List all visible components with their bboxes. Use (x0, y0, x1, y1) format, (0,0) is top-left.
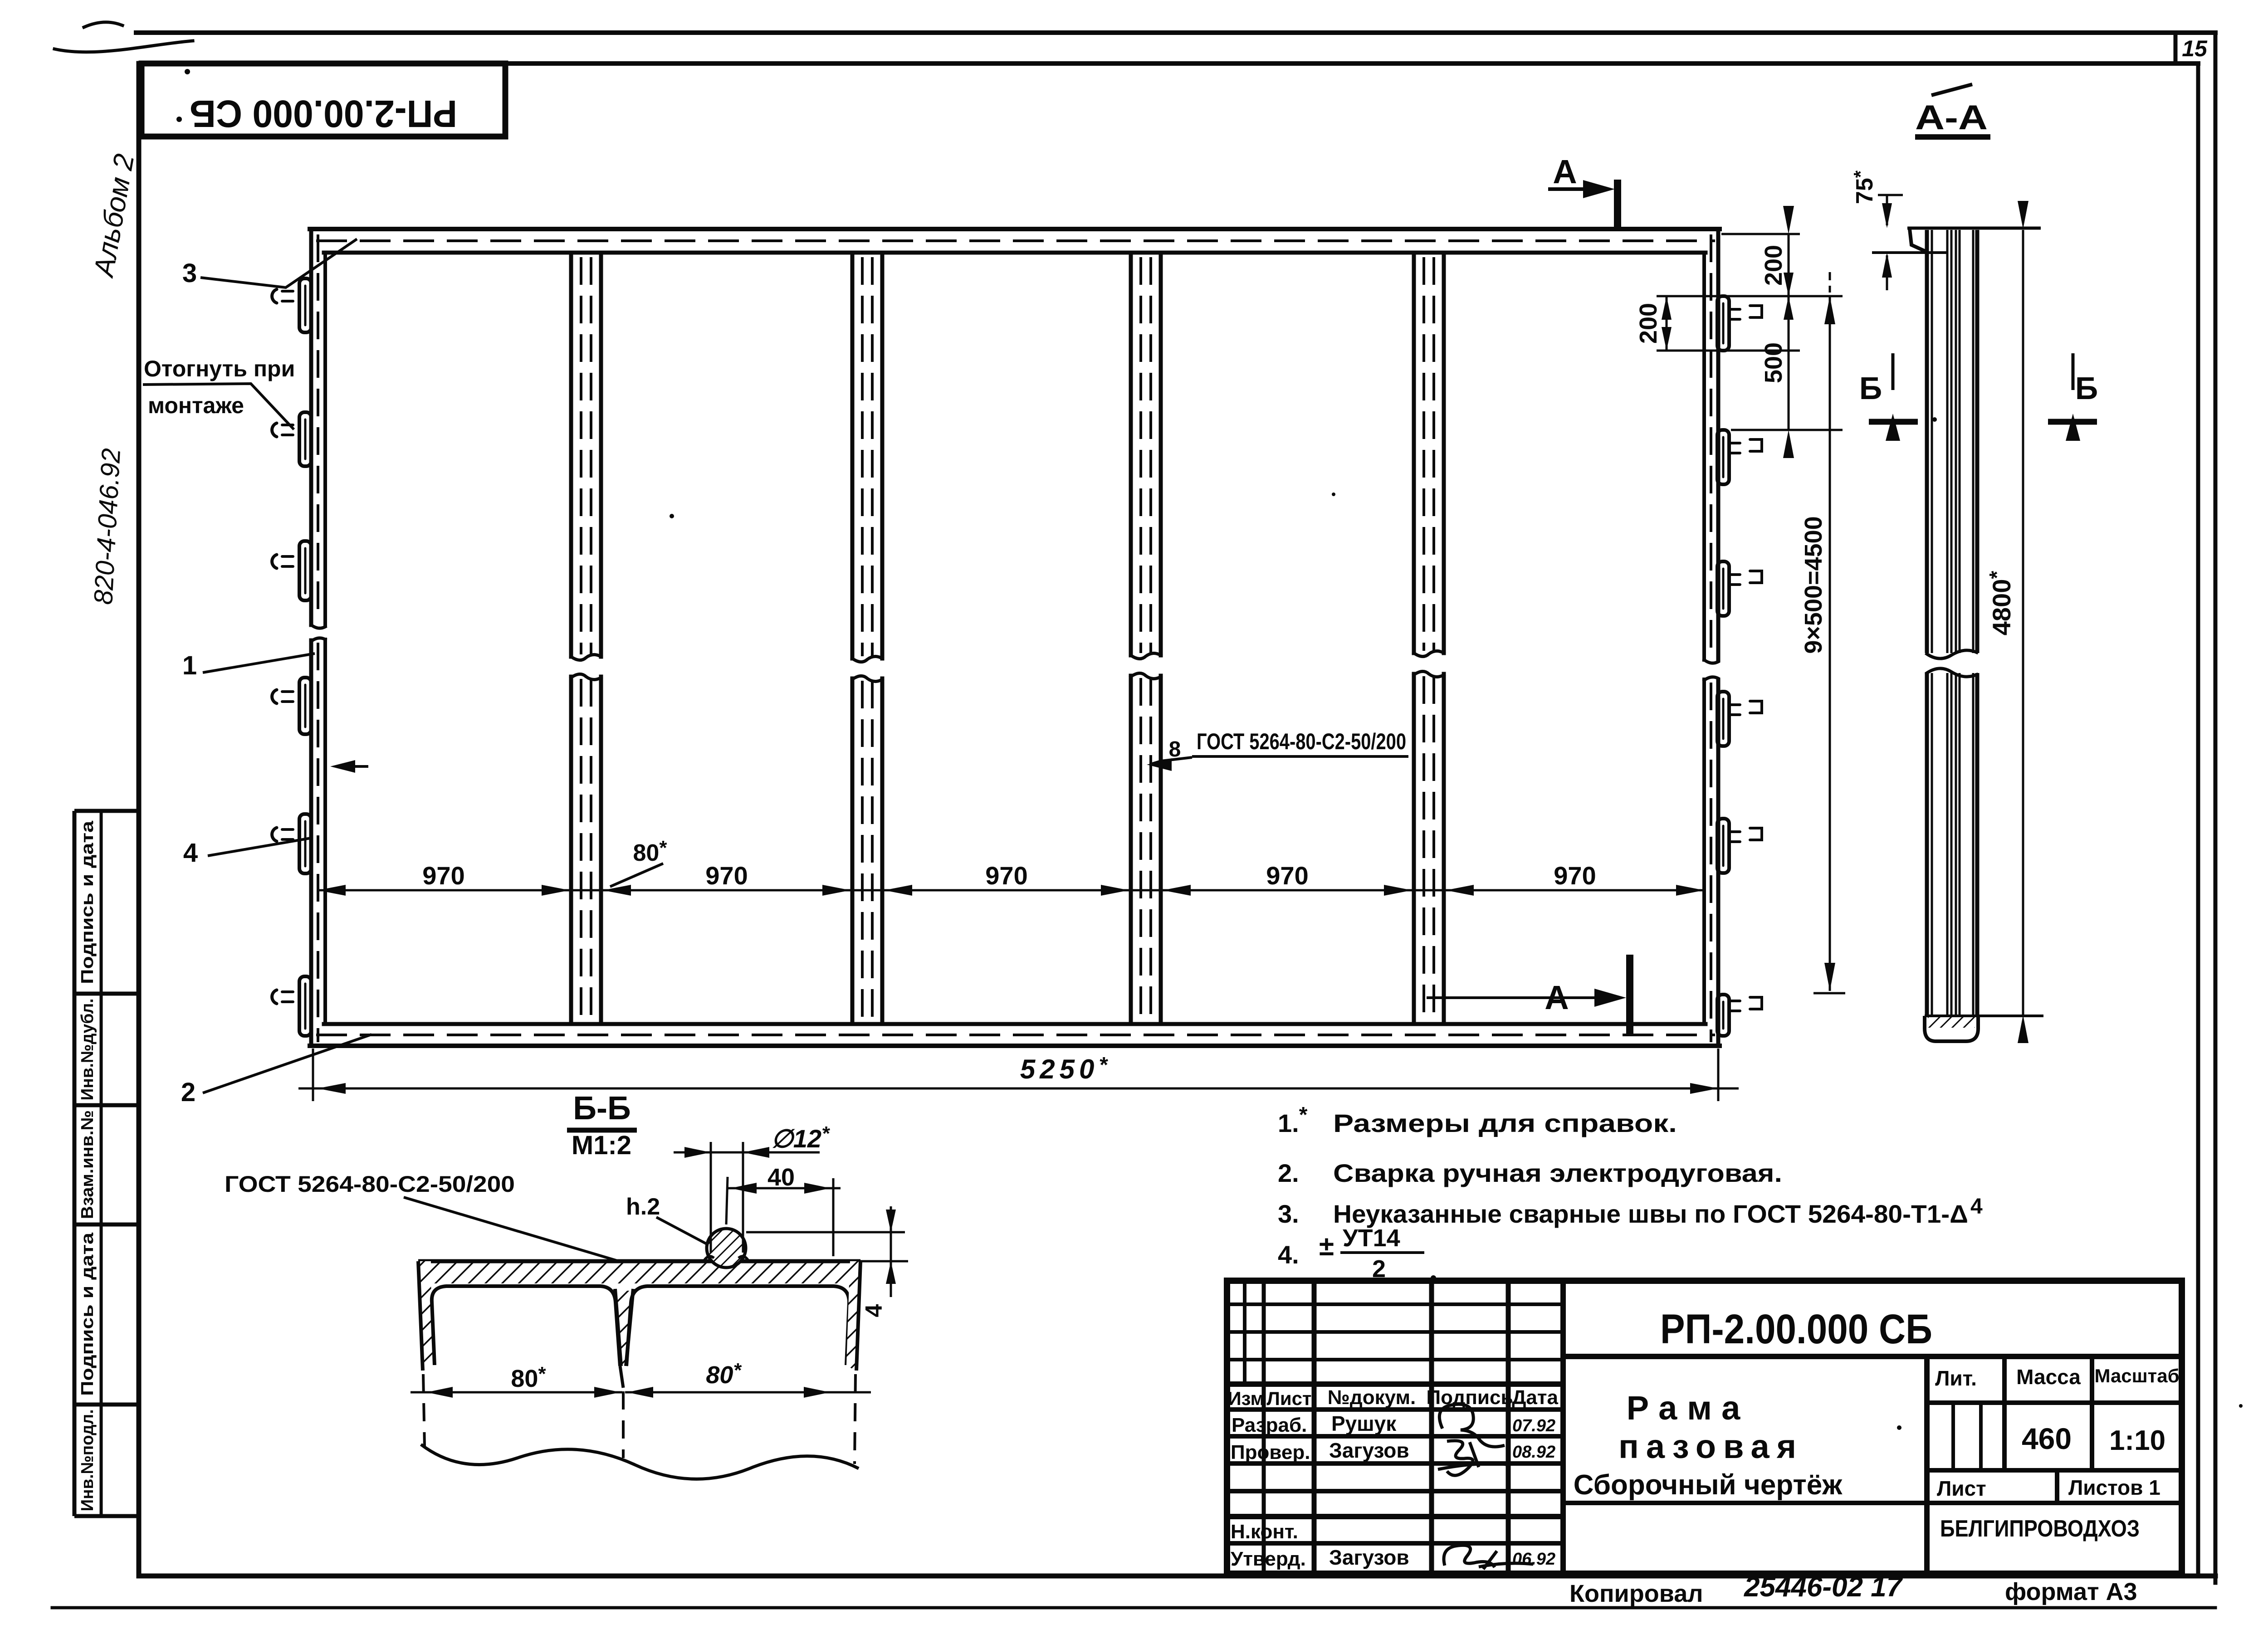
svg-text:Дата: Дата (1512, 1386, 1558, 1409)
svg-text:Б: Б (1859, 371, 1882, 406)
svg-text:Инв.№подл.: Инв.№подл. (78, 1410, 97, 1512)
svg-text:200: 200 (1760, 245, 1787, 286)
svg-text:970: 970 (1266, 861, 1308, 890)
svg-text:РП-2.00.000 СБ: РП-2.00.000 СБ (190, 93, 457, 135)
svg-text:Сборочный чертёж: Сборочный чертёж (1574, 1469, 1843, 1501)
svg-text:Подпись и дата: Подпись и дата (78, 820, 97, 984)
svg-text:±: ± (1319, 1231, 1334, 1261)
svg-text:40: 40 (767, 1164, 795, 1191)
svg-text:Провер.: Провер. (1231, 1441, 1310, 1463)
svg-text:монтаже: монтаже (148, 393, 244, 418)
svg-text:3: 3 (182, 259, 197, 288)
svg-text:Инв.№дубл.: Инв.№дубл. (78, 999, 97, 1101)
svg-text:Загузов: Загузов (1329, 1546, 1409, 1569)
svg-text:пазовая: пазовая (1618, 1428, 1804, 1465)
svg-text:4: 4 (861, 1304, 887, 1317)
svg-text:4: 4 (183, 838, 198, 868)
svg-text:1:10: 1:10 (2109, 1425, 2165, 1456)
svg-text:07.92: 07.92 (1512, 1416, 1555, 1435)
svg-text:970: 970 (705, 861, 748, 890)
svg-text:06.92: 06.92 (1512, 1550, 1555, 1569)
svg-text:Лит.: Лит. (1935, 1366, 1977, 1390)
svg-text:Рушук: Рушук (1331, 1412, 1397, 1435)
svg-text:500: 500 (1760, 342, 1787, 383)
svg-text:4: 4 (1970, 1195, 1983, 1219)
svg-text:Утверд.: Утверд. (1231, 1548, 1306, 1570)
svg-text:5250*: 5250* (1020, 1053, 1112, 1084)
svg-text:Подпись и дата: Подпись и дата (78, 1232, 97, 1396)
svg-text:970: 970 (985, 861, 1027, 890)
svg-text:15: 15 (2182, 36, 2208, 61)
svg-text:1: 1 (182, 651, 197, 680)
svg-text:460: 460 (2022, 1422, 2072, 1455)
svg-text:УТ14: УТ14 (1343, 1224, 1400, 1252)
svg-text:970: 970 (1554, 861, 1596, 890)
svg-text:Лист: Лист (1937, 1477, 1986, 1500)
svg-text:А-А: А-А (1915, 98, 1988, 137)
svg-text:Б: Б (2075, 371, 2098, 406)
svg-text:Отогнуть при: Отогнуть при (144, 356, 295, 381)
svg-text:Масштаб: Масштаб (2094, 1365, 2179, 1386)
svg-text:4.: 4. (1278, 1240, 1299, 1269)
svg-text:25446-02 17: 25446-02 17 (1744, 1571, 1903, 1603)
svg-text:2.: 2. (1278, 1159, 1299, 1187)
svg-text:Листов 1: Листов 1 (2068, 1476, 2160, 1499)
svg-text:Н.конт.: Н.конт. (1231, 1521, 1298, 1543)
svg-text:ГОСТ 5264-80-С2-50/200: ГОСТ 5264-80-С2-50/200 (225, 1171, 515, 1197)
svg-text:БЕЛГИПРОВОДХОЗ: БЕЛГИПРОВОДХОЗ (1940, 1516, 2140, 1542)
svg-text:Лист: Лист (1266, 1388, 1311, 1409)
svg-text:Рама: Рама (1627, 1389, 1750, 1427)
svg-text:2: 2 (181, 1078, 196, 1107)
svg-text:08.92: 08.92 (1512, 1443, 1555, 1462)
svg-text:Масса: Масса (2016, 1365, 2081, 1389)
svg-text:∅12*: ∅12* (771, 1122, 830, 1153)
svg-text:Копировал: Копировал (1569, 1580, 1703, 1607)
svg-text:РП-2.00.000 СБ: РП-2.00.000 СБ (1660, 1306, 1932, 1352)
svg-text:9×500=4500: 9×500=4500 (1800, 516, 1827, 654)
svg-text:4800*: 4800* (1985, 571, 2016, 636)
svg-text:3.: 3. (1278, 1200, 1299, 1228)
svg-text:200: 200 (1635, 303, 1662, 344)
svg-text:h.2: h.2 (626, 1194, 660, 1220)
svg-text:Сварка ручная электродуговая: Сварка ручная электродуговая. (1333, 1159, 1782, 1187)
svg-text:Подпись: Подпись (1427, 1386, 1513, 1409)
svg-text:ГОСТ 5264-80-С2-50/200: ГОСТ 5264-80-С2-50/200 (1197, 729, 1406, 754)
svg-text:Изм: Изм (1227, 1388, 1264, 1409)
svg-text:Б-Б: Б-Б (573, 1090, 631, 1127)
svg-text:Загузов: Загузов (1329, 1439, 1409, 1462)
svg-text:формат А3: формат А3 (2005, 1578, 2137, 1605)
svg-text:Разраб.: Разраб. (1232, 1414, 1307, 1436)
svg-text:Размеры для справок.: Размеры для справок. (1333, 1109, 1677, 1137)
svg-text:970: 970 (422, 861, 464, 890)
svg-text:Неуказанные сварные швы по ГОС: Неуказанные сварные швы по ГОСТ 5264-80-… (1333, 1200, 1968, 1228)
svg-text:№докум.: №докум. (1328, 1386, 1416, 1409)
svg-text:А: А (1553, 153, 1577, 190)
svg-text:Взам.инв.№: Взам.инв.№ (78, 1110, 97, 1219)
svg-text:М1:2: М1:2 (572, 1131, 631, 1160)
